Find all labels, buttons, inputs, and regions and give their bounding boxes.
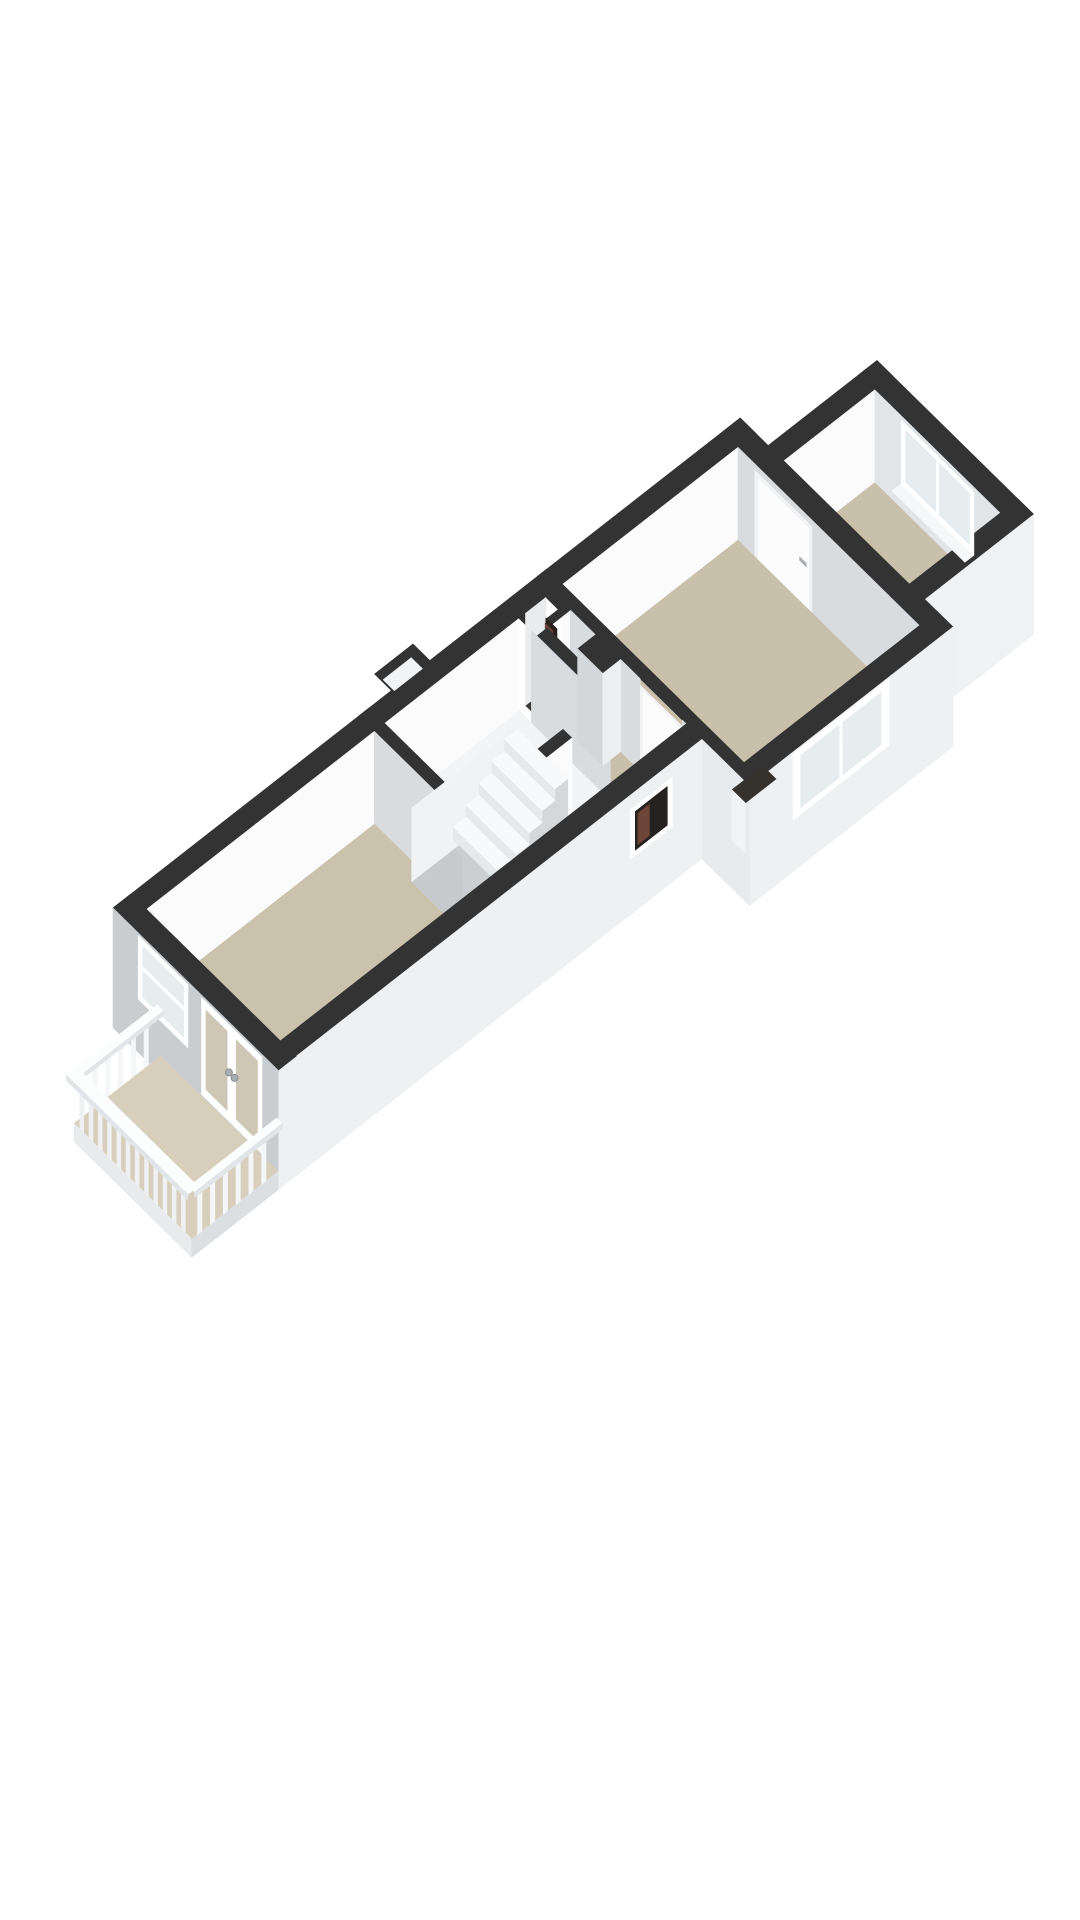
door-handle: [225, 1069, 232, 1076]
floor-plan-3d: [0, 0, 1080, 1920]
floor-plan-canvas: [0, 0, 1080, 1920]
chimney-column: [578, 635, 621, 766]
rail-slat: [198, 1189, 202, 1235]
rail-slat: [249, 1149, 253, 1195]
rail-slat: [236, 1159, 240, 1205]
column-se: [603, 660, 621, 766]
rail-slat: [223, 1169, 227, 1215]
sw-wall-face: [621, 660, 641, 771]
door-handle: [231, 1074, 238, 1081]
rail-slat: [210, 1179, 214, 1225]
shaft-cap: [531, 631, 537, 729]
rail-slat: [262, 1139, 266, 1185]
